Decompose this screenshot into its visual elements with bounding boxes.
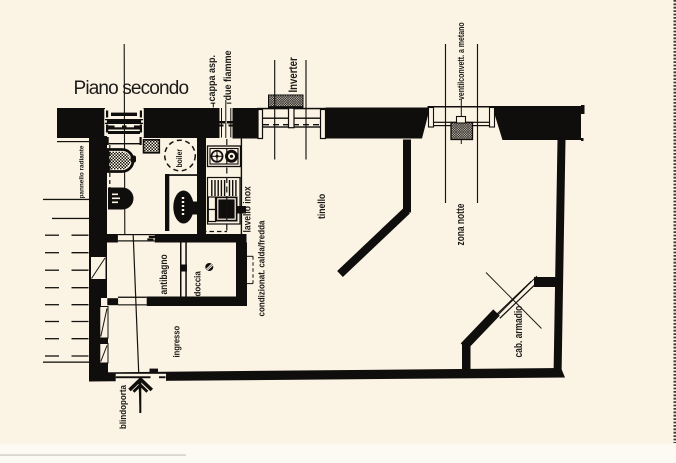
svg-text:doccia: doccia xyxy=(192,271,202,297)
svg-text:ventilconvett. a metano: ventilconvett. a metano xyxy=(455,22,466,100)
svg-text:tinello: tinello xyxy=(316,193,327,219)
svg-text:boiler: boiler xyxy=(174,149,184,168)
svg-text:Piano secondo: Piano secondo xyxy=(74,78,189,99)
svg-text:Inverter: Inverter xyxy=(287,57,300,93)
svg-text:ingresso: ingresso xyxy=(172,326,182,358)
svg-text:cappa asp.: cappa asp. xyxy=(207,55,219,101)
svg-text:condizionat. calda/fredda: condizionat. calda/fredda xyxy=(256,220,267,316)
svg-text:zona notte: zona notte xyxy=(455,203,467,245)
svg-text:blindoporta: blindoporta xyxy=(117,385,128,429)
svg-text:antibagno: antibagno xyxy=(158,254,169,294)
svg-text:lavello inox: lavello inox xyxy=(242,186,253,233)
svg-text:pannello radiante: pannello radiante xyxy=(79,145,86,198)
svg-text:cab. armadio: cab. armadio xyxy=(513,306,525,358)
svg-text:due fiamme: due fiamme xyxy=(223,51,235,101)
